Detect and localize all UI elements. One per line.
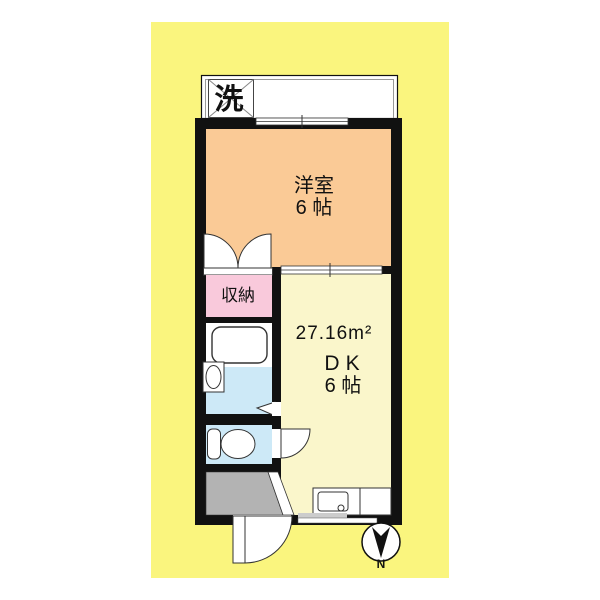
kitchen-counter: [313, 488, 391, 515]
entrance-area: [206, 472, 294, 515]
western-room-name: 洋室: [294, 174, 334, 197]
western-room-size: 6 帖: [296, 196, 333, 219]
dk-name-label: DK: [324, 352, 365, 375]
dk-area-label: 27.16m²: [296, 323, 373, 344]
washer-label: 洗: [214, 83, 243, 116]
kitchen-window: [298, 518, 377, 523]
floor-plan-page: 洗 洋室 6 帖 収納 27.16m² DK 6 帖 N: [0, 0, 600, 600]
bathtub: [212, 327, 267, 363]
floor-plan-drawing: 洗 洋室 6 帖 収納 27.16m² DK 6 帖 N: [0, 0, 600, 600]
sink-drain: [338, 505, 344, 511]
compass-north-label: N: [377, 557, 386, 571]
washbasin: [203, 362, 224, 392]
bath-door-opening: [272, 402, 281, 416]
compass: [362, 523, 400, 561]
toilet-room: [206, 425, 272, 464]
closet-label: 収納: [221, 286, 255, 305]
entrance-door-leaf: [233, 516, 245, 563]
toilet-door-opening: [272, 429, 281, 458]
bathroom: [203, 323, 275, 415]
toilet-bowl: [221, 430, 255, 459]
toilet-tank: [208, 429, 221, 459]
dk-size-label: 6 帖: [325, 374, 362, 397]
counter-base: [298, 513, 347, 518]
